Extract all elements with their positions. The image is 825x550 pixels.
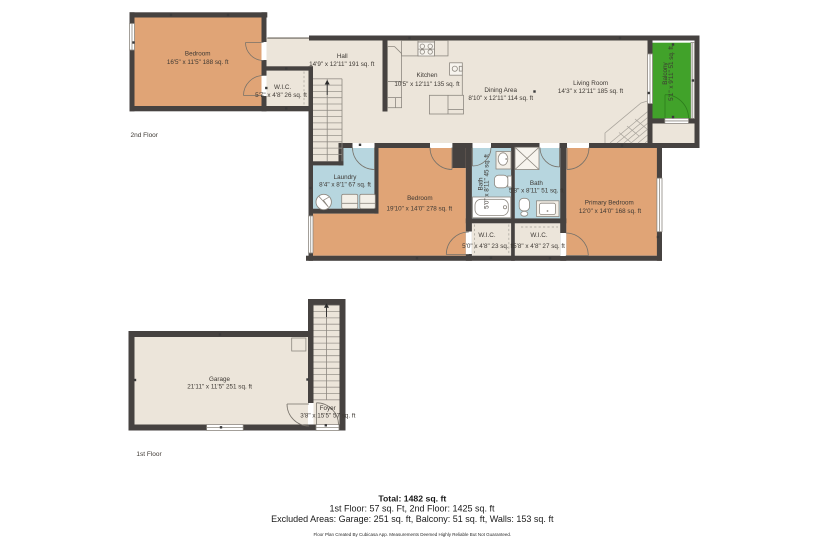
svg-text:3'8" x 15'5" 57 sq. ft: 3'8" x 15'5" 57 sq. ft xyxy=(300,413,355,420)
svg-text:Primary Bedroom: Primary Bedroom xyxy=(585,200,634,207)
svg-text:W.I.C.: W.I.C. xyxy=(274,84,291,91)
svg-text:Excluded Areas: Garage: 251 sq: Excluded Areas: Garage: 251 sq. ft, Balc… xyxy=(271,514,554,524)
svg-text:14'3" x 12'11" 185 sq. ft: 14'3" x 12'11" 185 sq. ft xyxy=(558,88,623,95)
svg-text:10'5" x 12'11" 135 sq. ft: 10'5" x 12'11" 135 sq. ft xyxy=(394,81,459,88)
svg-text:1st Floor: 1st Floor xyxy=(136,451,162,458)
svg-text:21'11" x 11'5" 251 sq. ft: 21'11" x 11'5" 251 sq. ft xyxy=(187,384,252,391)
svg-text:Bath: Bath xyxy=(530,180,543,187)
svg-text:5'8" x 8'11" 51 sq. ft: 5'8" x 8'11" 51 sq. ft xyxy=(509,187,564,194)
svg-text:W.I.C.: W.I.C. xyxy=(478,232,495,239)
svg-text:8'4" x 8'1" 67 sq. ft: 8'4" x 8'1" 67 sq. ft xyxy=(319,181,371,188)
svg-text:5'0" x 8'11" 45 sq. ft: 5'0" x 8'11" 45 sq. ft xyxy=(484,154,491,209)
svg-text:Bedroom: Bedroom xyxy=(407,195,433,202)
svg-text:19'10" x 14'0" 278 sq. ft: 19'10" x 14'0" 278 sq. ft xyxy=(386,205,452,212)
svg-text:5'1" x 9'11" 51 sq. ft: 5'1" x 9'11" 51 sq. ft xyxy=(668,46,675,101)
svg-text:Kitchen: Kitchen xyxy=(416,72,438,79)
svg-text:Floor Plan Created By Cubicasa: Floor Plan Created By Cubicasa App. Meas… xyxy=(313,532,511,537)
svg-text:5'0" x 4'8" 23 sq. ft: 5'0" x 4'8" 23 sq. ft xyxy=(462,243,514,250)
svg-text:Bedroom: Bedroom xyxy=(185,51,211,58)
svg-text:Total: 1482 sq. ft: Total: 1482 sq. ft xyxy=(378,494,446,504)
svg-text:16'5" x 11'5" 188 sq. ft: 16'5" x 11'5" 188 sq. ft xyxy=(167,59,229,66)
svg-text:8'10" x 12'11" 114 sq. ft: 8'10" x 12'11" 114 sq. ft xyxy=(468,95,533,102)
svg-text:Foyer: Foyer xyxy=(320,405,336,412)
svg-text:1st Floor: 57 sq. Ft, 2nd Floo: 1st Floor: 57 sq. Ft, 2nd Floor: 1425 sq… xyxy=(329,504,495,514)
svg-text:5'7" x 4'8" 26 sq. ft: 5'7" x 4'8" 26 sq. ft xyxy=(255,92,307,99)
svg-text:Garage: Garage xyxy=(209,376,231,383)
svg-text:Hall: Hall xyxy=(337,53,348,60)
svg-text:12'0" x 14'0" 168 sq. ft: 12'0" x 14'0" 168 sq. ft xyxy=(579,208,641,215)
svg-text:W.I.C.: W.I.C. xyxy=(530,232,547,239)
svg-text:2nd Floor: 2nd Floor xyxy=(131,132,159,139)
svg-text:Living Room: Living Room xyxy=(573,80,608,87)
svg-text:Laundry: Laundry xyxy=(334,174,358,181)
svg-text:Dining Area: Dining Area xyxy=(484,87,517,94)
svg-text:5'8" x 4'8" 27 sq. ft: 5'8" x 4'8" 27 sq. ft xyxy=(513,243,565,250)
svg-text:14'9" x 12'11" 191 sq. ft: 14'9" x 12'11" 191 sq. ft xyxy=(309,61,374,68)
